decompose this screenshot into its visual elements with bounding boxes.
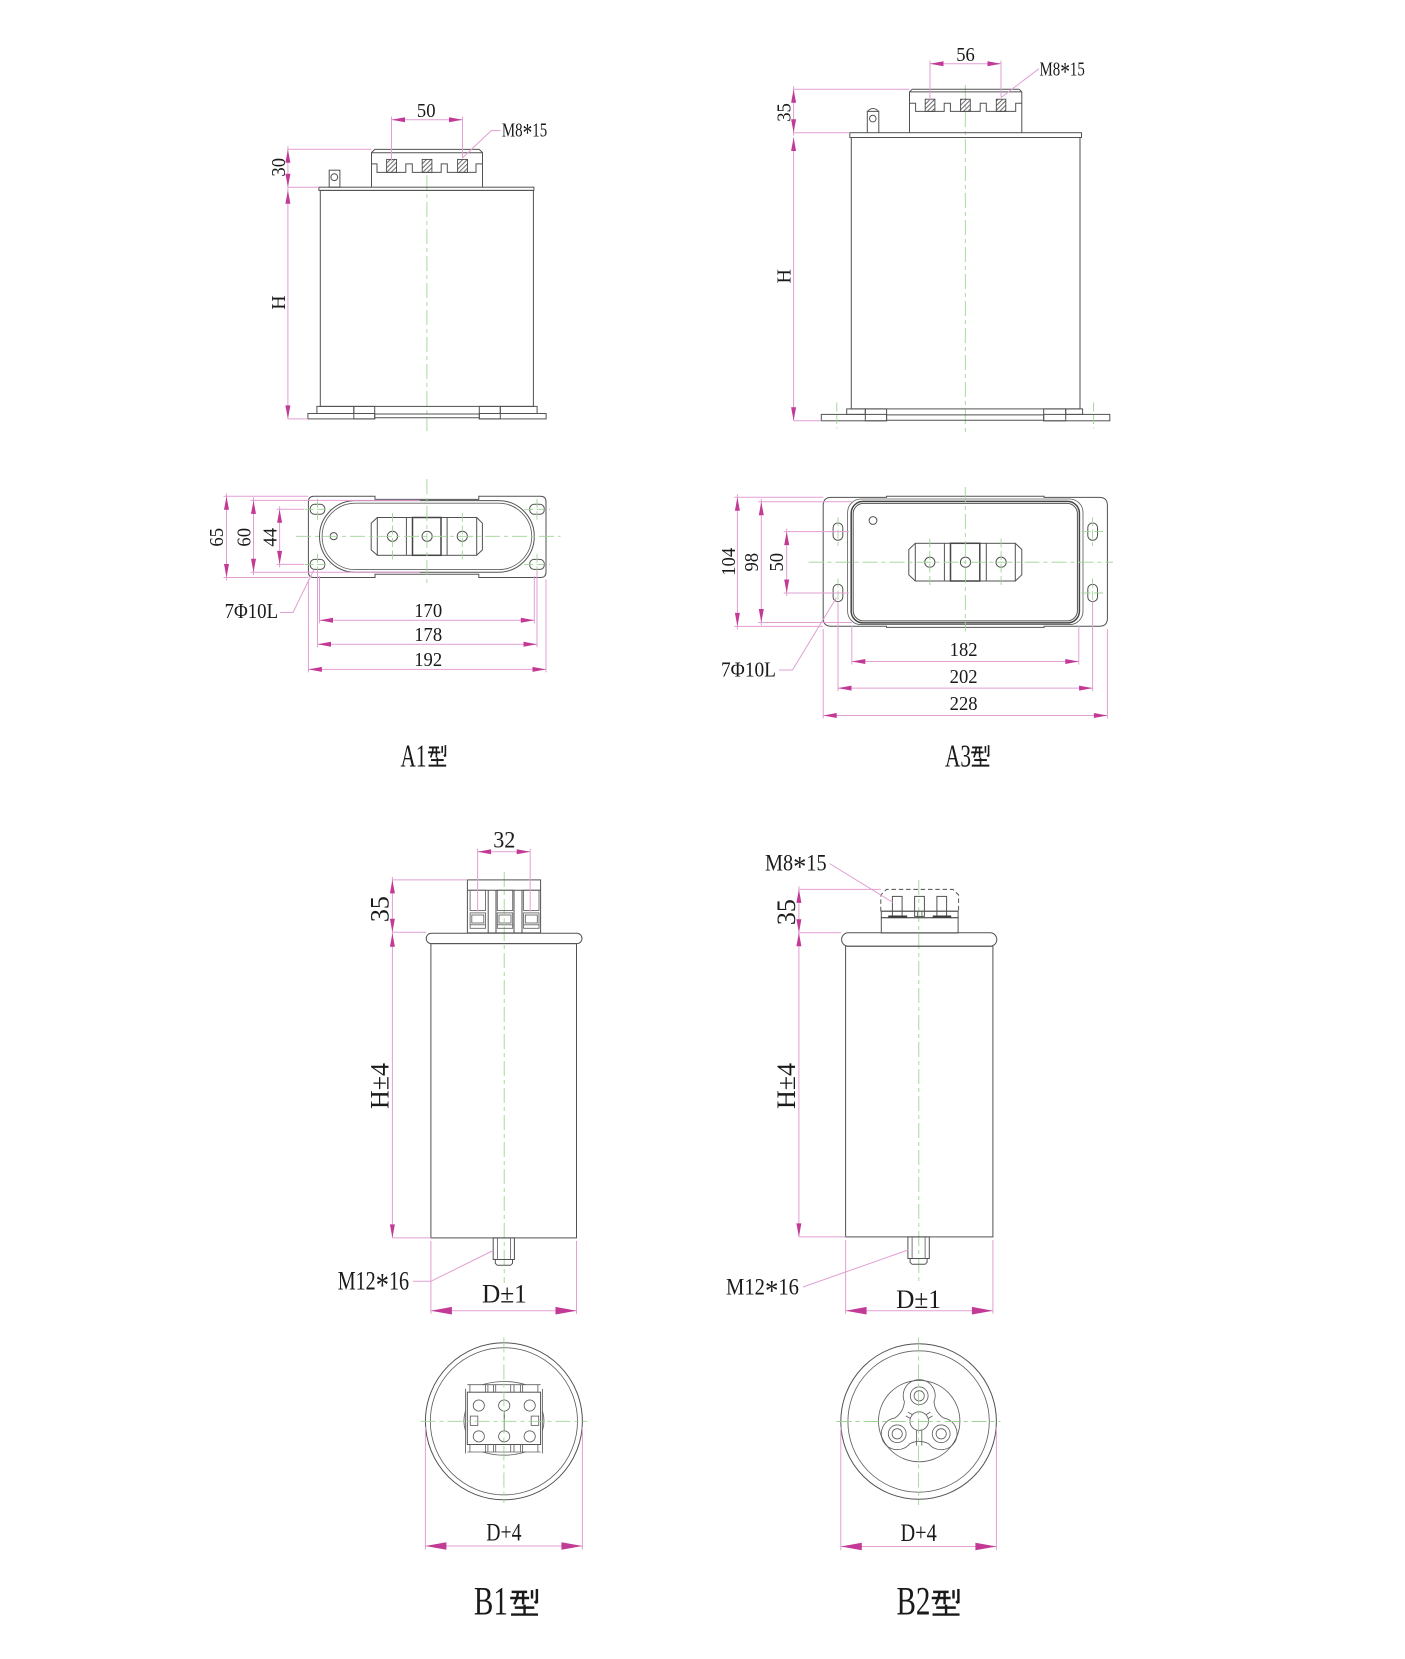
svg-text:D+4: D+4: [486, 1519, 522, 1546]
svg-text:202: 202: [950, 666, 978, 688]
svg-text:B2: B2: [897, 1579, 931, 1624]
svg-text:A3: A3: [945, 738, 971, 774]
svg-text:H: H: [774, 269, 796, 283]
svg-text:D+4: D+4: [900, 1520, 937, 1547]
svg-text:56: 56: [956, 44, 975, 66]
svg-text:D±1: D±1: [896, 1285, 941, 1314]
svg-text:30: 30: [268, 158, 290, 177]
svg-text:44: 44: [259, 528, 281, 547]
svg-text:170: 170: [414, 600, 442, 622]
svg-text:50: 50: [417, 100, 436, 122]
svg-text:228: 228: [950, 693, 978, 715]
svg-text:50: 50: [766, 553, 788, 572]
svg-text:60: 60: [233, 528, 255, 547]
svg-text:178: 178: [414, 624, 442, 646]
svg-text:35: 35: [774, 103, 796, 122]
svg-text:H: H: [268, 295, 290, 309]
svg-text:A1: A1: [401, 738, 427, 774]
svg-text:35: 35: [365, 896, 394, 922]
svg-text:H±4: H±4: [772, 1063, 801, 1109]
svg-text:182: 182: [950, 639, 978, 661]
svg-text:98: 98: [741, 553, 763, 572]
svg-text:D±1: D±1: [482, 1279, 527, 1308]
svg-text:7Φ10L: 7Φ10L: [225, 599, 279, 623]
svg-text:H±4: H±4: [365, 1063, 394, 1109]
svg-text:104: 104: [718, 548, 740, 576]
svg-text:192: 192: [414, 649, 442, 671]
svg-text:35: 35: [772, 899, 801, 925]
svg-text:B1: B1: [474, 1579, 508, 1624]
svg-text:32: 32: [493, 827, 515, 852]
svg-text:7Φ10L: 7Φ10L: [721, 658, 776, 682]
svg-text:65: 65: [206, 528, 228, 547]
